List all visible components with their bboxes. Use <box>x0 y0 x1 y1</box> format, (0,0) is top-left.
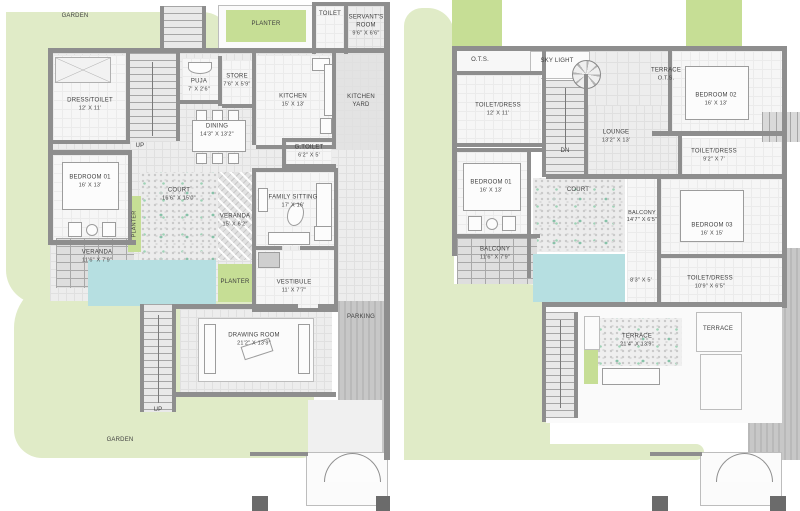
chair <box>68 222 82 237</box>
pool <box>533 254 625 302</box>
dining-chair <box>212 110 223 121</box>
wall <box>48 150 132 155</box>
room-dim: 11'6" X 7'9" <box>480 254 510 261</box>
room-dim: 17' X 16' <box>269 202 318 209</box>
wall <box>180 100 222 104</box>
room-dim: 21'4" X 13'9" <box>620 341 654 348</box>
chair <box>502 216 516 231</box>
wall <box>250 452 308 456</box>
room-name: BEDROOM 02 <box>695 93 736 101</box>
wall <box>252 53 256 145</box>
room-name: DINING <box>200 124 234 132</box>
room-dim: 9'6" X 6'6" <box>347 30 385 37</box>
wash-counter <box>258 252 280 268</box>
gate-pier <box>376 496 390 511</box>
dining-chair <box>228 110 239 121</box>
stair-direction-line <box>560 320 561 408</box>
room-dim: 15' X 6'2" <box>220 221 250 228</box>
label-puja: PUJA7' X 2'6" <box>188 79 210 94</box>
wall <box>48 240 136 245</box>
room-dim: 11' X 7'7" <box>277 287 312 294</box>
wall <box>584 74 588 174</box>
wall <box>574 312 578 418</box>
stairs <box>164 6 202 50</box>
label-toilet-dress-3: TOILET/DRESS10'9" X 6'5" <box>687 276 733 291</box>
sofa <box>204 324 216 374</box>
room-dim: 15' X 13' <box>279 101 307 108</box>
label-sky-light: SKY LIGHT <box>540 58 573 66</box>
sofa <box>316 183 332 227</box>
stairs <box>130 53 176 141</box>
wall <box>678 136 682 176</box>
room-dim: 12' X 11' <box>67 105 113 112</box>
room-dim: 7' X 2'6" <box>188 86 210 93</box>
floor-plan-canvas: GARDEN PLANTER TOILET SERVANT'S ROOM9'6"… <box>0 0 800 511</box>
room-name: SERVANT'S ROOM <box>347 15 385 31</box>
label-up: UP <box>136 143 145 151</box>
stair-direction-line <box>158 315 159 403</box>
label-servants-room: SERVANT'S ROOM9'6" X 6'6" <box>347 15 385 38</box>
label-lounge: LOUNGE13'2" X 13' <box>602 130 630 145</box>
entry-walk <box>308 400 382 454</box>
label-parking: PARKING <box>347 314 375 322</box>
court-paving <box>140 172 218 260</box>
wall <box>252 168 256 310</box>
wall <box>452 46 786 51</box>
label-store: STORE7'6" X 5'9" <box>223 74 250 89</box>
room-dim: 16' X 13' <box>695 100 736 107</box>
label-toilet-dress-1: TOILET/DRESS12' X 11' <box>475 103 521 118</box>
wall <box>318 304 336 309</box>
label-up: UP <box>154 407 163 415</box>
label-planter: PLANTER <box>251 21 280 29</box>
gate-pier <box>652 496 668 511</box>
label-kitchen: KITCHEN15' X 13' <box>279 94 307 109</box>
label-terrace-top: TERRACEO.T.S. <box>651 68 681 83</box>
wall <box>384 2 390 460</box>
room-name: VESTIBULE <box>277 280 312 288</box>
label-garden: GARDEN <box>62 13 89 21</box>
wall <box>222 104 254 108</box>
wall <box>126 53 130 141</box>
room-name: G.TOILET <box>295 145 324 153</box>
label-dn: DN <box>560 148 569 156</box>
room-name: DRESS/TOILET <box>67 98 113 106</box>
wall <box>300 246 336 250</box>
label-g-toilet: G.TOILET6'2" X 5' <box>295 145 324 160</box>
room-dim: 13'2" X 13' <box>602 137 630 144</box>
wall <box>160 6 164 52</box>
room-name: TERRACE <box>620 334 654 342</box>
label-drawing-room: DRAWING ROOM21'2" X 13'9" <box>228 333 280 348</box>
wall <box>546 174 786 179</box>
room-dim: 6'2" X 5' <box>295 152 324 159</box>
room-name: PUJA <box>188 79 210 87</box>
room-name: TERRACE <box>651 68 681 76</box>
wall <box>652 131 786 136</box>
wall <box>252 168 334 172</box>
side-table <box>486 218 498 230</box>
room-dim: 12' X 11' <box>475 110 521 117</box>
label-planter-mid: PLANTER <box>220 279 249 287</box>
label-dress-toilet: DRESS/TOILET12' X 11' <box>67 98 113 113</box>
label-passage: 8'3" X 5' <box>630 277 652 284</box>
room-name: LOUNGE <box>602 130 630 138</box>
room-dim: 10'9" X 6'5" <box>687 283 733 290</box>
room-name: STORE <box>223 74 250 82</box>
wall <box>176 392 336 397</box>
label-veranda-left: VERANDA11'6" X 7'9" <box>82 250 112 265</box>
room-dim: 9'2" X 7' <box>691 156 737 163</box>
label-court: COURT16'6" X 15'0" <box>162 188 196 203</box>
label-terrace-main: TERRACE21'4" X 13'9" <box>620 334 654 349</box>
room-name: BALCONY <box>480 247 510 255</box>
room-dim: 16'6" X 15'0" <box>162 195 196 202</box>
room-name: BEDROOM 01 <box>470 180 511 188</box>
label-bedroom-01: BEDROOM 0116' X 13' <box>69 175 110 190</box>
wall <box>657 174 661 304</box>
wall <box>312 2 316 54</box>
sofa <box>314 226 332 241</box>
tv-unit <box>258 188 268 212</box>
dining-chair <box>212 153 223 164</box>
label-balcony-west: BALCONY11'6" X 7'9" <box>480 247 510 262</box>
garden-area <box>6 12 52 304</box>
label-ots: O.T.S. <box>471 57 489 65</box>
sofa <box>268 232 310 245</box>
stair-direction-line <box>565 88 566 148</box>
wall <box>312 2 388 6</box>
room-name: DRAWING ROOM <box>228 333 280 341</box>
wall <box>176 53 180 141</box>
wall <box>140 304 144 412</box>
label-toilet-dress-2: TOILET/DRESS9'2" X 7' <box>691 149 737 164</box>
label-veranda-right: VERANDA15' X 6'2" <box>220 214 250 229</box>
room-name: KITCHEN <box>279 94 307 102</box>
wall <box>668 46 672 136</box>
room-name: VERANDA <box>82 250 112 258</box>
room-dim: 21'2" X 13'9" <box>228 340 280 347</box>
room-dim: 7'6" X 5'9" <box>223 81 250 88</box>
wall <box>48 48 53 245</box>
label-vestibule: VESTIBULE11' X 7'7" <box>277 280 312 295</box>
room-name: FAMILY SITTING <box>269 195 318 203</box>
room-dim: 11'6" X 7'9" <box>82 257 112 264</box>
room-name: TOILET/DRESS <box>687 276 733 284</box>
room-dim: 14'7" X 6'5" <box>627 217 657 224</box>
chair <box>468 216 482 231</box>
room-name: BALCONY <box>627 210 657 217</box>
wall <box>334 168 338 310</box>
steps <box>762 112 800 142</box>
room-dim: 16' X 13' <box>470 187 511 194</box>
chair <box>102 222 116 237</box>
pool <box>88 260 216 306</box>
wall <box>218 56 222 106</box>
label-dining: DINING14'3" X 13'2" <box>200 124 234 139</box>
wall <box>252 246 282 250</box>
garden-area <box>404 284 550 458</box>
wall <box>546 302 661 307</box>
label-court: COURT <box>567 187 589 195</box>
room-name: VERANDA <box>220 214 250 222</box>
label-bedroom-02: BEDROOM 0216' X 13' <box>695 93 736 108</box>
wall <box>650 452 702 456</box>
planter <box>452 0 502 46</box>
wall <box>452 234 540 238</box>
room-dim: 16' X 15' <box>691 230 732 237</box>
room-dim: 14'3" X 13'2" <box>200 131 234 138</box>
stair-direction-line <box>152 62 153 136</box>
wall <box>452 143 544 147</box>
label-planter-court: PLANTER <box>131 211 138 238</box>
wall <box>657 302 786 307</box>
wall <box>527 148 531 278</box>
planter <box>584 350 598 384</box>
label-family-sitting: FAMILY SITTING17' X 16' <box>269 195 318 210</box>
closet <box>55 57 111 83</box>
label-garden: GARDEN <box>107 437 134 445</box>
label-kitchen-yard: KITCHEN YARD <box>342 94 380 110</box>
gate-pier <box>252 496 268 511</box>
wall <box>657 254 786 258</box>
wall <box>332 53 336 149</box>
wall <box>542 51 546 177</box>
terrace-small-lower <box>700 354 742 410</box>
label-bedroom-01: BEDROOM 0116' X 13' <box>470 180 511 195</box>
terrace-box <box>584 316 600 350</box>
room-dim: 16' X 13' <box>69 182 110 189</box>
sofa <box>298 324 310 374</box>
room-name: TOILET/DRESS <box>475 103 521 111</box>
wall <box>542 302 546 422</box>
label-toilet: TOILET <box>319 11 341 19</box>
gate-pier <box>770 496 786 511</box>
room-name: BEDROOM 01 <box>69 175 110 183</box>
wall <box>202 6 206 52</box>
label-balcony-east: BALCONY14'7" X 6'5" <box>627 210 657 224</box>
lounger <box>602 368 660 385</box>
dining-chair <box>228 153 239 164</box>
dining-chair <box>196 153 207 164</box>
label-bedroom-03: BEDROOM 0316' X 15' <box>691 223 732 238</box>
kitchen-sink <box>320 118 332 134</box>
side-table <box>86 224 98 236</box>
puja-arch <box>188 62 212 74</box>
room-name: COURT <box>162 188 196 196</box>
wall <box>176 304 298 309</box>
wall <box>48 140 130 144</box>
planter <box>686 0 742 46</box>
wall <box>282 138 336 142</box>
room-name: TOILET/DRESS <box>691 149 737 157</box>
label-terrace-small: TERRACE <box>703 326 733 334</box>
room-dim: O.T.S. <box>651 75 681 82</box>
dining-chair <box>196 110 207 121</box>
room-name: BEDROOM 03 <box>691 223 732 231</box>
wall <box>452 71 544 75</box>
